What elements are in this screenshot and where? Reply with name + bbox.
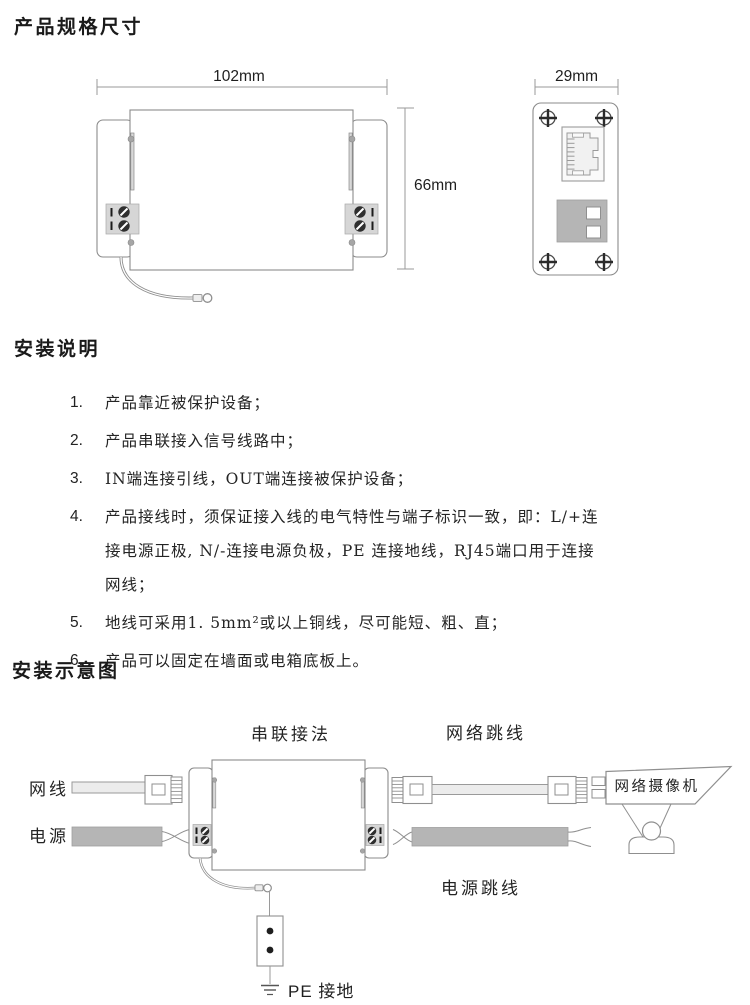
rj45-plug: [403, 777, 432, 804]
earth-ground-icon: [261, 986, 279, 995]
section-title-instructions: 安装说明: [14, 334, 100, 361]
width-dimension-29mm: 29mm: [535, 68, 618, 95]
left-terminal-block: [106, 204, 139, 234]
height-dimension-label: 66mm: [414, 177, 457, 194]
ground-terminal-block: [257, 916, 283, 966]
right-mount-flange: [351, 120, 387, 257]
height-dimension-66mm: 66mm: [397, 108, 457, 269]
side-width-dimension-label: 29mm: [555, 68, 598, 85]
ring-terminal: [264, 884, 272, 892]
power-cable: [72, 827, 190, 846]
camera-mount: [622, 804, 674, 854]
left-mount-flange: [97, 120, 133, 257]
item-text: 产品可以固定在墙面或电箱底板上。: [105, 644, 610, 678]
label-pe-ground: PE 接地: [288, 982, 354, 1001]
rj45-port: [562, 127, 604, 181]
device-body: [212, 760, 365, 870]
network-jumper: [392, 777, 587, 804]
label-network-camera: 网络摄像机: [615, 778, 700, 795]
item-number: 4.: [70, 500, 105, 602]
network-camera: 网络摄像机: [592, 767, 731, 854]
device-body: [130, 110, 353, 270]
label-network-jumper: 网络跳线: [446, 724, 526, 744]
plug-contacts: [392, 778, 403, 803]
power-jumper: [393, 828, 591, 847]
item-text: 产品靠近被保护设备；: [105, 386, 610, 420]
wire-ferrule: [193, 295, 202, 302]
plug-contacts: [171, 777, 182, 803]
width-dimension-label: 102mm: [213, 68, 265, 85]
right-terminal-block: [366, 825, 384, 846]
instruction-item-5: 5. 地线可采用1. 5mm²或以上铜线，尽可能短、粗、直；: [70, 606, 670, 640]
label-power-jumper: 电源跳线: [441, 879, 521, 899]
instruction-item-6: 6. 产品可以固定在墙面或电箱底板上。: [70, 644, 670, 678]
ring-terminal: [203, 294, 212, 303]
instruction-item-1: 1. 产品靠近被保护设备；: [70, 386, 670, 420]
label-network-cable: 网线: [29, 780, 69, 800]
datasheet-page: 产品规格尺寸 102mm 66mm: [0, 0, 750, 1005]
label-power: 电源: [29, 827, 69, 847]
instruction-item-3: 3. IN端连接引线，OUT端连接被保护设备；: [70, 462, 670, 496]
camera-connector-stub: [592, 790, 605, 799]
item-text: 产品接线时，须保证接入线的电气特性与端子标识一致，即：L/+连接电源正极, N/…: [105, 500, 610, 602]
rj45-plug: [145, 776, 172, 805]
item-text: 地线可采用1. 5mm²或以上铜线，尽可能短、粗、直；: [105, 606, 610, 640]
label-series-connection: 串联接法: [251, 725, 331, 745]
left-terminal-block: [193, 825, 211, 846]
instruction-item-2: 2. 产品串联接入信号线路中；: [70, 424, 670, 458]
section-title-dimensions: 产品规格尺寸: [14, 12, 143, 39]
section-title-diagram: 安装示意图: [12, 656, 120, 683]
item-text: IN端连接引线，OUT端连接被保护设备；: [105, 462, 610, 496]
product-dimensions-drawing: 102mm 66mm: [0, 50, 750, 312]
wire-ferrule: [255, 885, 263, 891]
front-view: [97, 110, 387, 302]
protector-device: [189, 760, 388, 870]
plug-contacts: [576, 778, 587, 803]
instruction-list: 1. 产品靠近被保护设备； 2. 产品串联接入信号线路中； 3. IN端连接引线…: [70, 386, 670, 682]
rj45-plug: [548, 777, 576, 804]
item-number: 3.: [70, 462, 105, 496]
power-terminal-face: [557, 200, 607, 242]
side-view: [533, 103, 618, 275]
camera-connector-stub: [592, 777, 605, 786]
installation-diagram: 串联接法 网络跳线 网线 电源 电源跳线: [0, 700, 750, 1005]
item-number: 5.: [70, 606, 105, 640]
instruction-item-4: 4. 产品接线时，须保证接入线的电气特性与端子标识一致，即：L/+连接电源正极,…: [70, 500, 670, 602]
item-text: 产品串联接入信号线路中；: [105, 424, 610, 458]
right-terminal-block: [345, 204, 378, 234]
item-number: 1.: [70, 386, 105, 420]
network-cable: [72, 776, 182, 805]
pe-ground-assembly: PE 接地: [200, 858, 354, 1001]
width-dimension-102mm: 102mm: [97, 68, 387, 95]
item-number: 2.: [70, 424, 105, 458]
